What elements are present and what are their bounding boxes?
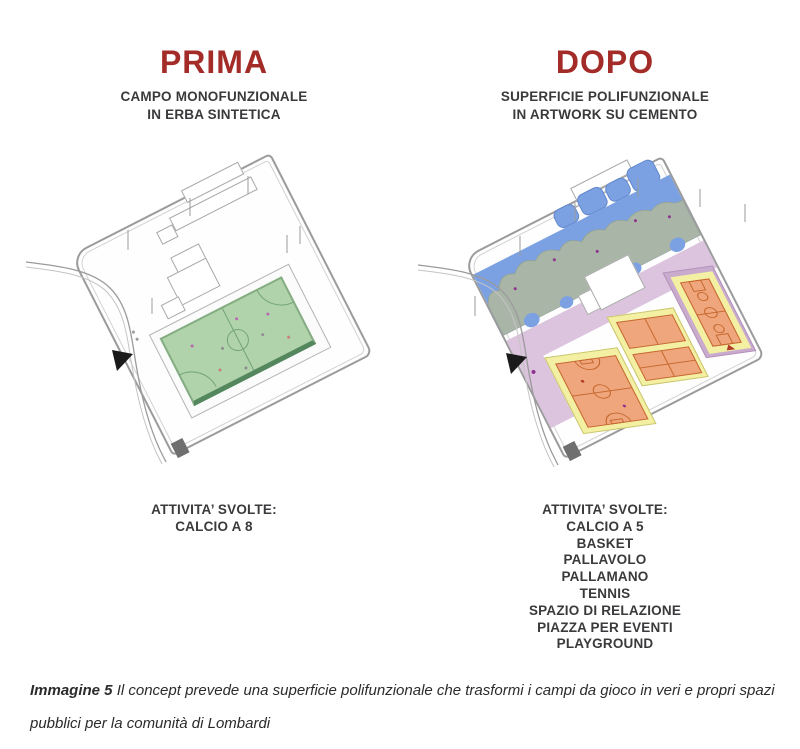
figure-caption-text: Il concept prevede una superficie polifu… — [30, 682, 775, 732]
before-activities-header: ATTIVITA’ SVOLTE: — [54, 502, 374, 519]
activity-item: CALCIO A 8 — [54, 519, 374, 536]
light-poles-after — [475, 179, 745, 316]
activity-item: PLAYGROUND — [445, 636, 765, 653]
activity-item: PIAZZA PER EVENTI — [445, 620, 765, 637]
after-activities: ATTIVITA’ SVOLTE: CALCIO A 5 BASKET PALL… — [445, 502, 765, 653]
activity-item: BASKET — [445, 536, 765, 553]
activity-item: SPAZIO DI RELAZIONE — [445, 603, 765, 620]
figure-caption-label: Immagine 5 — [30, 682, 113, 699]
activity-item: PALLAVOLO — [445, 552, 765, 569]
figure-page: PRIMA CAMPO MONOFUNZIONALE IN ERBA SINTE… — [0, 0, 800, 749]
after-activities-header: ATTIVITA’ SVOLTE: — [445, 502, 765, 519]
light-poles-before — [128, 176, 300, 314]
figure-caption: Immagine 5 Il concept prevede una superf… — [30, 674, 782, 740]
activity-item: PALLAMANO — [445, 569, 765, 586]
before-activities: ATTIVITA’ SVOLTE: CALCIO A 8 — [54, 502, 374, 536]
activity-item: TENNIS — [445, 586, 765, 603]
activity-item: CALCIO A 5 — [445, 519, 765, 536]
